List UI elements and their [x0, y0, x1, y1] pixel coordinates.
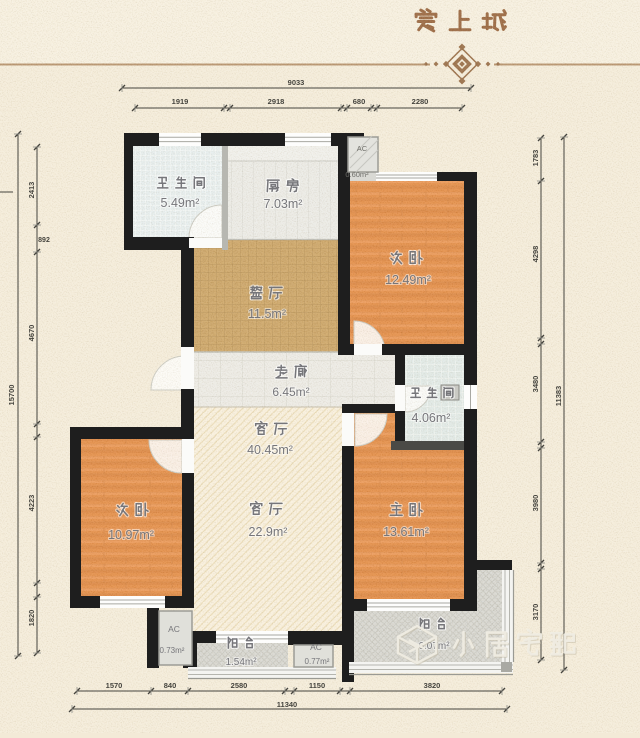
svg-text:AC: AC [357, 144, 368, 153]
svg-text:1783: 1783 [531, 150, 540, 167]
svg-text:4298: 4298 [531, 246, 540, 263]
svg-text:2918: 2918 [268, 97, 285, 106]
svg-text:680: 680 [353, 97, 366, 106]
svg-text:0.60m²: 0.60m² [345, 170, 369, 179]
svg-text:11383: 11383 [554, 386, 563, 406]
svg-text:3170: 3170 [531, 604, 540, 621]
svg-text:5.49m²: 5.49m² [161, 196, 200, 210]
svg-text:10.97m²: 10.97m² [108, 528, 154, 542]
svg-text:4.06m²: 4.06m² [412, 411, 451, 425]
svg-text:1820: 1820 [27, 610, 36, 627]
svg-text:4670: 4670 [27, 325, 36, 342]
svg-text:1.54m²: 1.54m² [225, 657, 257, 668]
svg-text:1570: 1570 [106, 681, 123, 690]
svg-text:4223: 4223 [27, 495, 36, 512]
svg-text:13.61m²: 13.61m² [383, 525, 429, 539]
svg-text:6.45m²: 6.45m² [272, 385, 309, 399]
svg-text:840: 840 [164, 681, 177, 690]
svg-text:3980: 3980 [531, 495, 540, 512]
svg-text:AC: AC [310, 642, 322, 652]
svg-text:AC: AC [168, 624, 180, 634]
svg-text:9033: 9033 [288, 78, 305, 87]
svg-text:11.5m²: 11.5m² [248, 307, 286, 321]
svg-text:892: 892 [38, 237, 50, 244]
svg-text:0.77m²: 0.77m² [305, 657, 330, 666]
svg-text:40.45m²: 40.45m² [247, 443, 293, 457]
svg-text:7.03m²: 7.03m² [264, 197, 303, 211]
svg-text:2280: 2280 [412, 97, 429, 106]
svg-text:11340: 11340 [277, 700, 297, 709]
svg-text:12.49m²: 12.49m² [385, 273, 431, 287]
svg-text:2413: 2413 [27, 182, 36, 199]
svg-text:1150: 1150 [309, 681, 325, 690]
svg-text:3480: 3480 [531, 376, 540, 393]
svg-text:3820: 3820 [424, 681, 441, 690]
svg-text:22.9m²: 22.9m² [249, 525, 288, 539]
svg-text:0.73m²: 0.73m² [160, 646, 185, 655]
svg-text:1919: 1919 [172, 97, 189, 106]
svg-text:15700: 15700 [7, 385, 16, 406]
svg-text:2580: 2580 [231, 681, 248, 690]
